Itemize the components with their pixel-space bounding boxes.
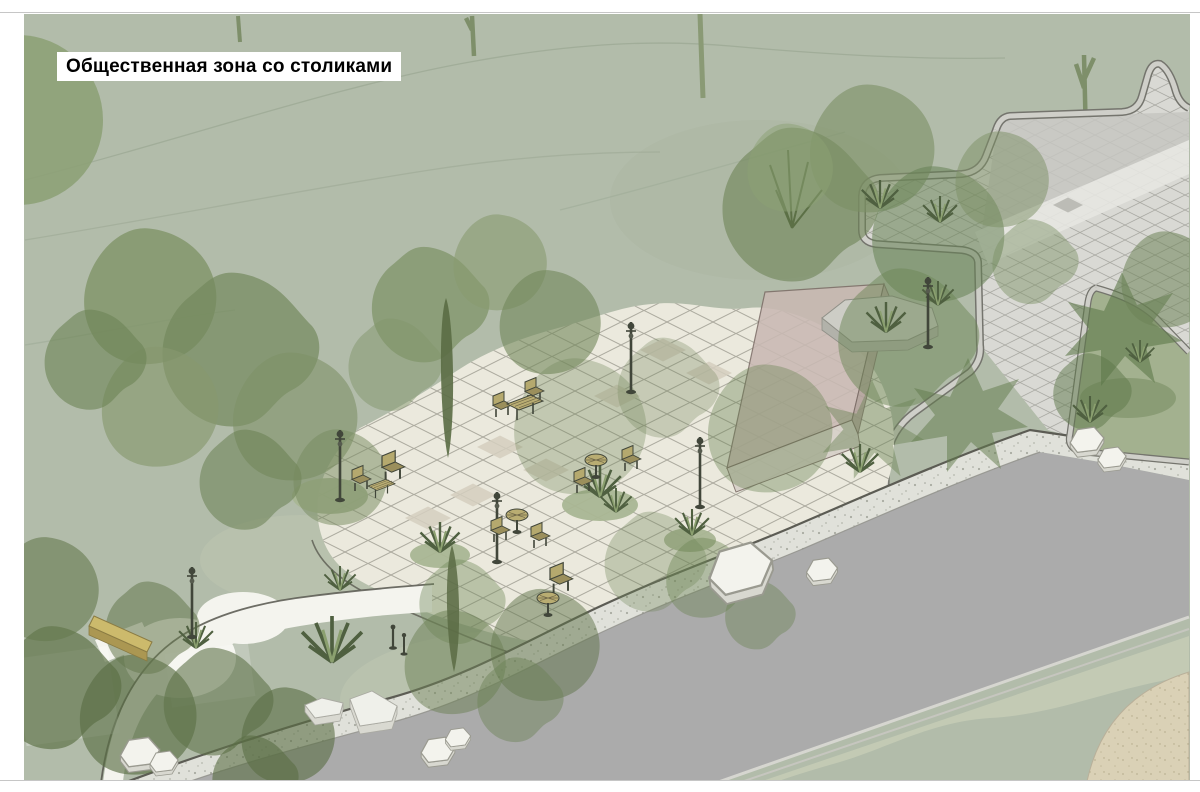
site-plan-illustration [24, 14, 1190, 780]
frame-top-line [0, 12, 1200, 13]
architectural-render-page: Общественная зона со столиками [0, 0, 1200, 792]
title-label: Общественная зона со столиками [57, 52, 401, 81]
title-text: Общественная зона со столиками [66, 56, 392, 77]
frame-bottom-line [0, 780, 1200, 781]
site-plan-canvas [24, 14, 1190, 780]
